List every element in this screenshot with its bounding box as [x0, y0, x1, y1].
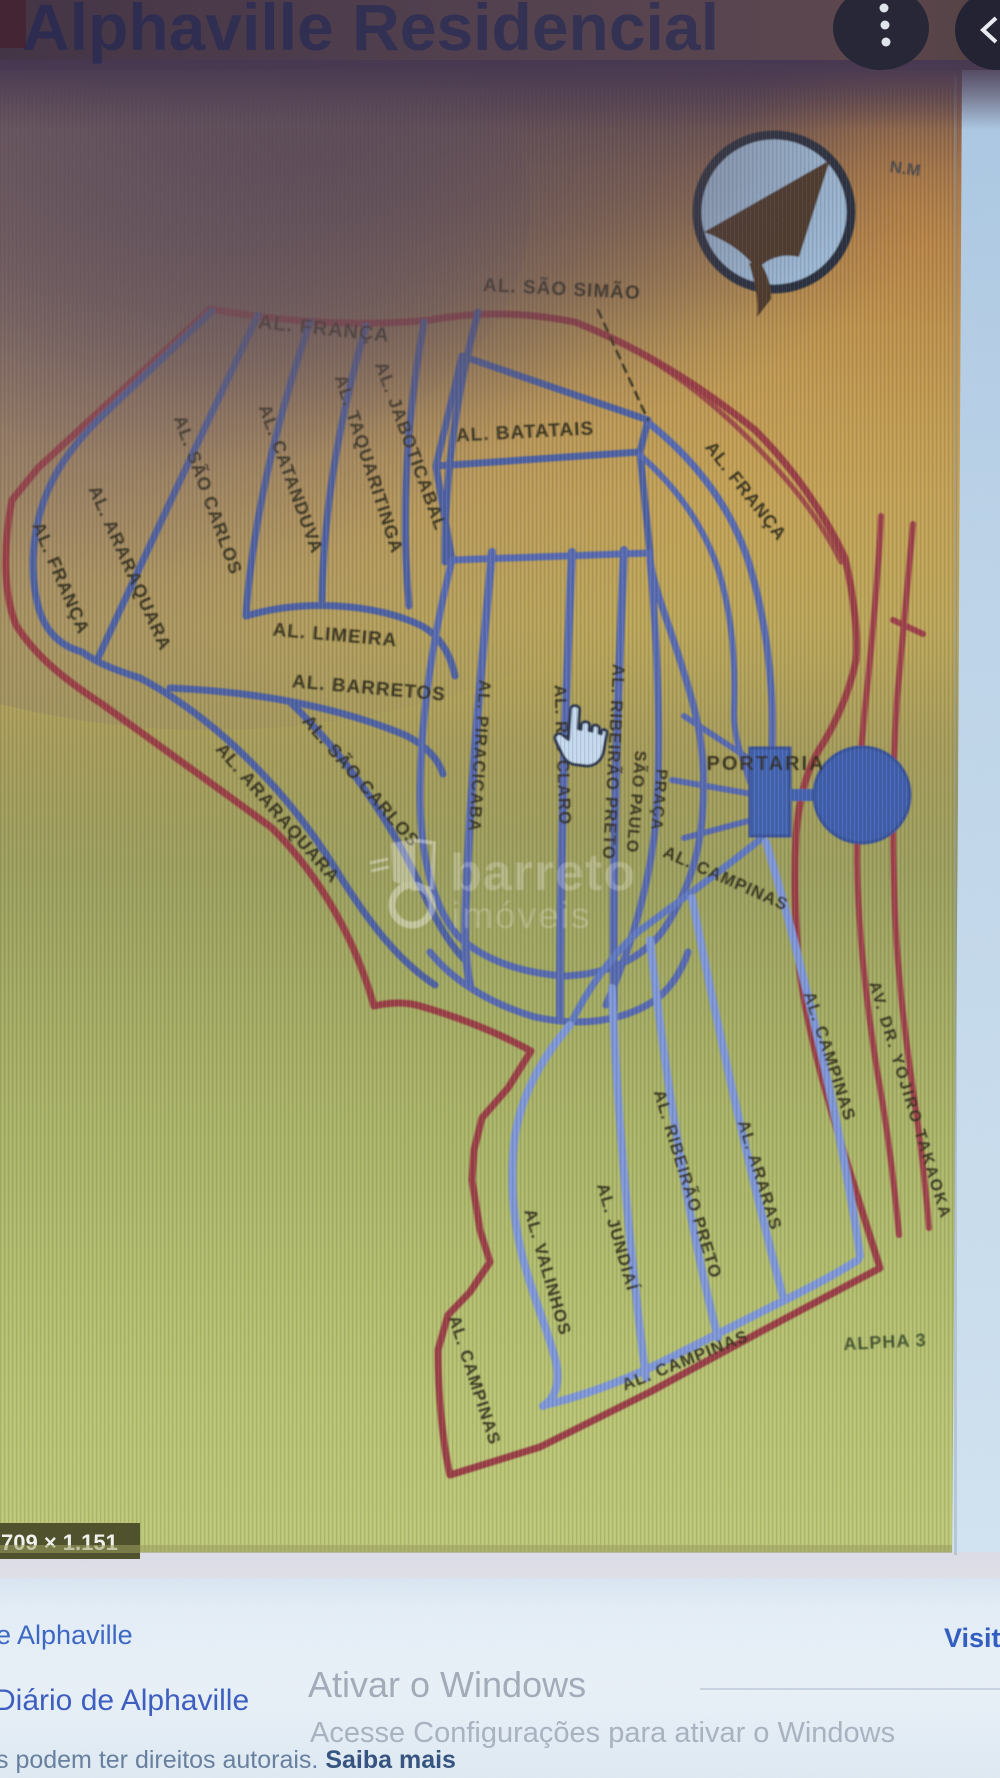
- svg-text:Alphaville Residencial: Alphaville Residencial: [22, 0, 719, 64]
